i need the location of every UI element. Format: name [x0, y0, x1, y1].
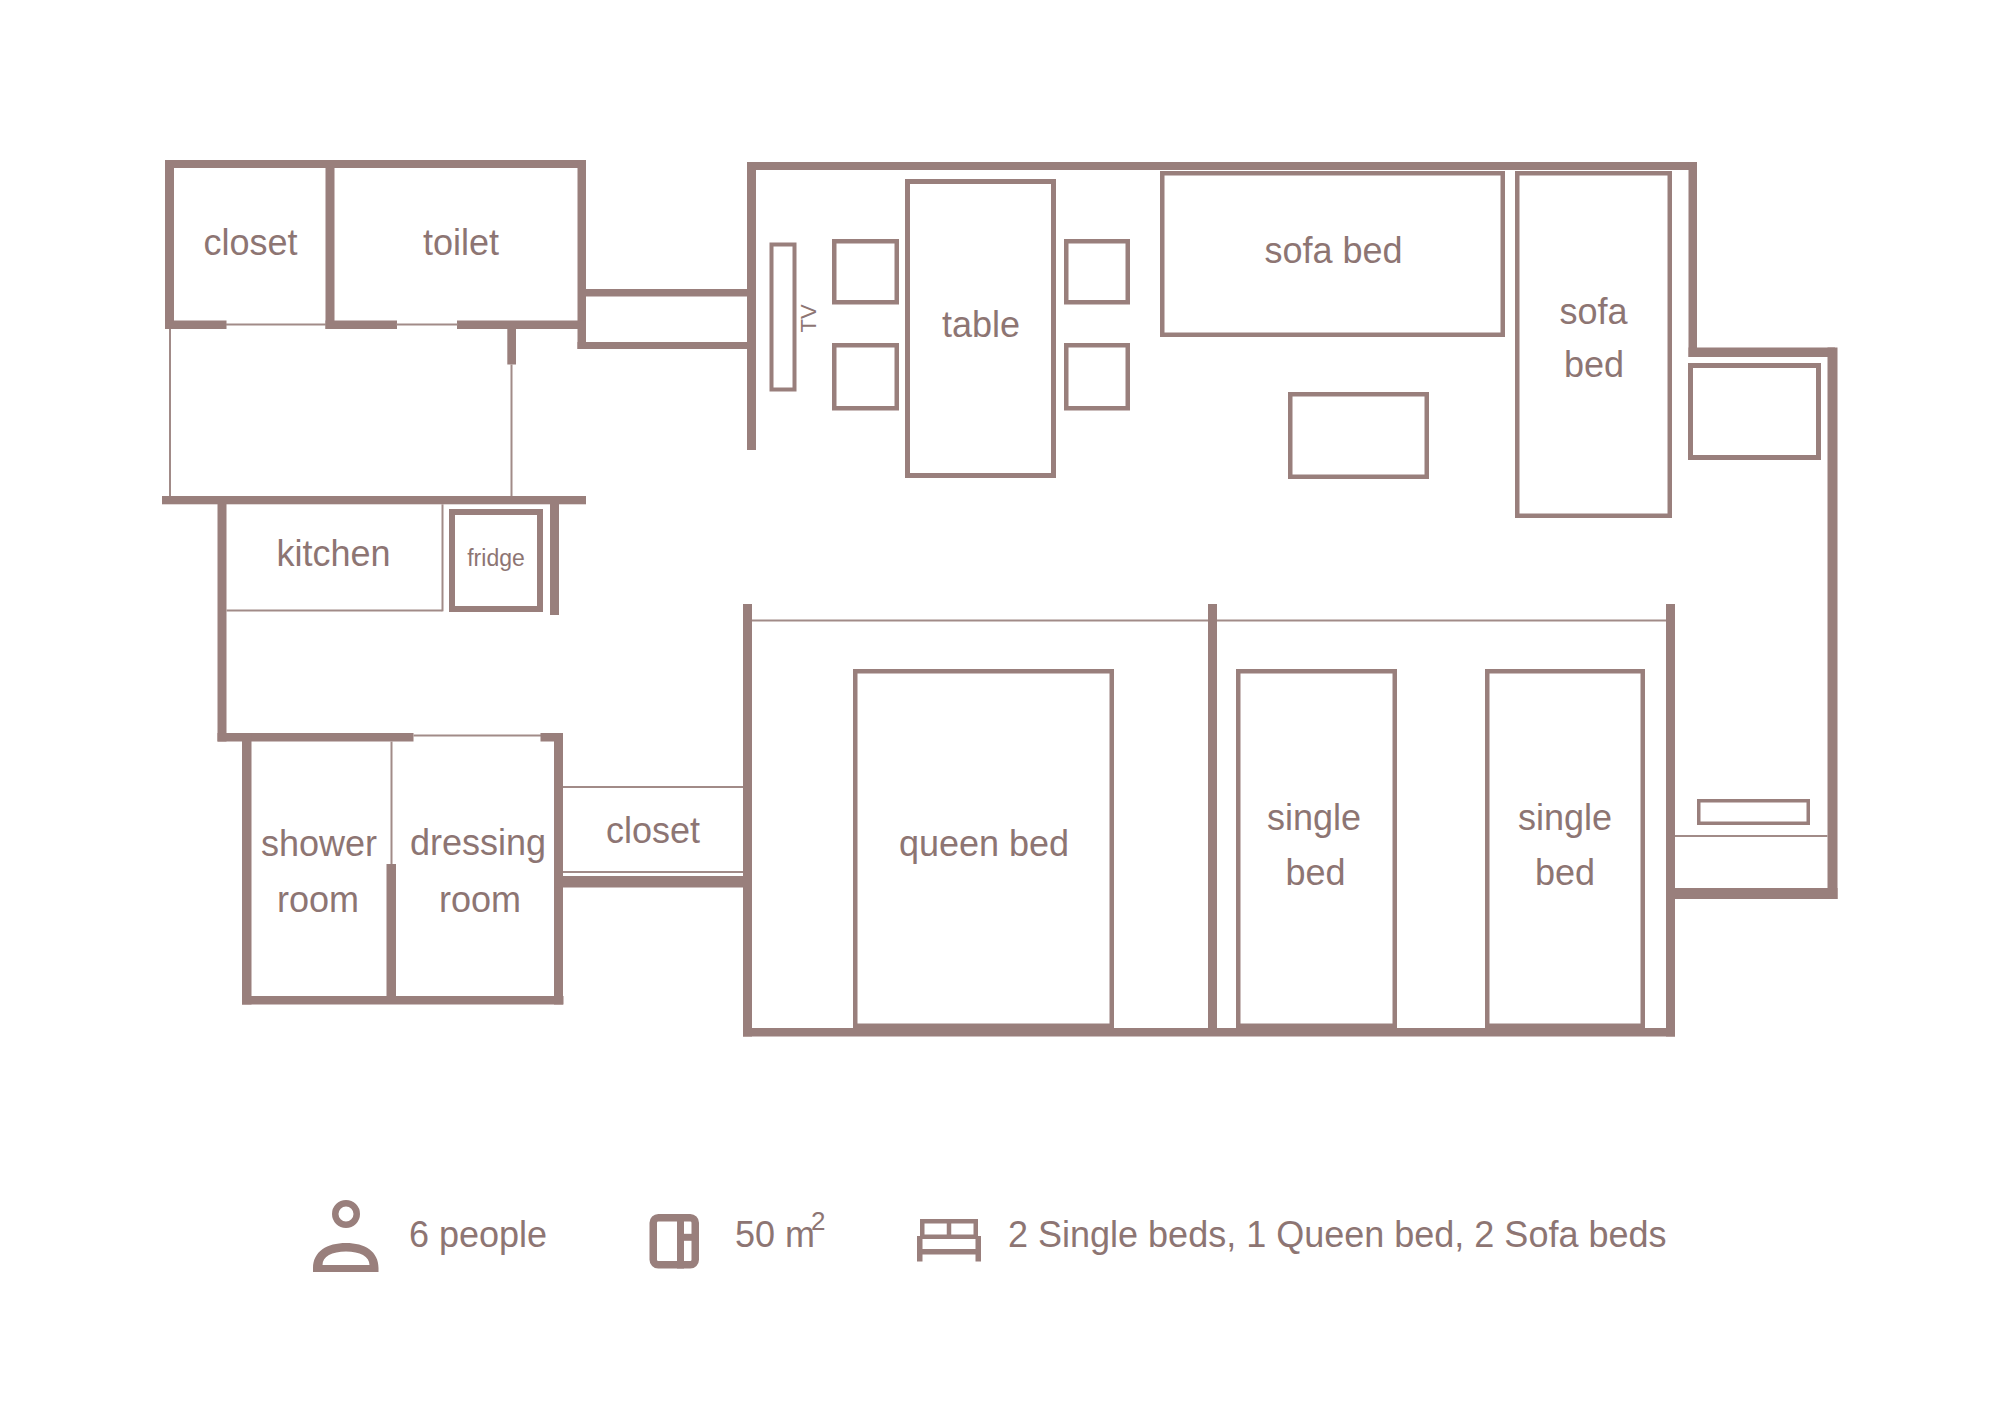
- svg-text:50 m: 50 m: [735, 1214, 815, 1255]
- svg-text:shower: shower: [261, 823, 377, 864]
- svg-text:bed: bed: [1564, 344, 1624, 385]
- svg-text:sofa bed: sofa bed: [1264, 230, 1402, 271]
- svg-text:bed: bed: [1285, 852, 1345, 893]
- svg-text:single: single: [1518, 797, 1612, 838]
- svg-text:fridge: fridge: [467, 545, 525, 571]
- svg-text:TV: TV: [796, 304, 821, 332]
- svg-text:closet: closet: [203, 222, 297, 263]
- svg-text:closet: closet: [606, 810, 700, 851]
- svg-text:2 Single beds, 1 Queen bed, 2: 2 Single beds, 1 Queen bed, 2 Sofa beds: [1008, 1214, 1667, 1255]
- svg-text:toilet: toilet: [423, 222, 499, 263]
- svg-text:6 people: 6 people: [409, 1214, 547, 1255]
- svg-text:table: table: [942, 304, 1020, 345]
- svg-text:bed: bed: [1535, 852, 1595, 893]
- svg-text:kitchen: kitchen: [276, 533, 390, 574]
- svg-text:room: room: [277, 879, 359, 920]
- svg-text:single: single: [1267, 797, 1361, 838]
- svg-text:room: room: [439, 879, 521, 920]
- svg-text:sofa: sofa: [1559, 291, 1628, 332]
- svg-text:queen bed: queen bed: [899, 823, 1069, 864]
- svg-text:dressing: dressing: [410, 822, 546, 863]
- svg-text:2: 2: [811, 1206, 825, 1236]
